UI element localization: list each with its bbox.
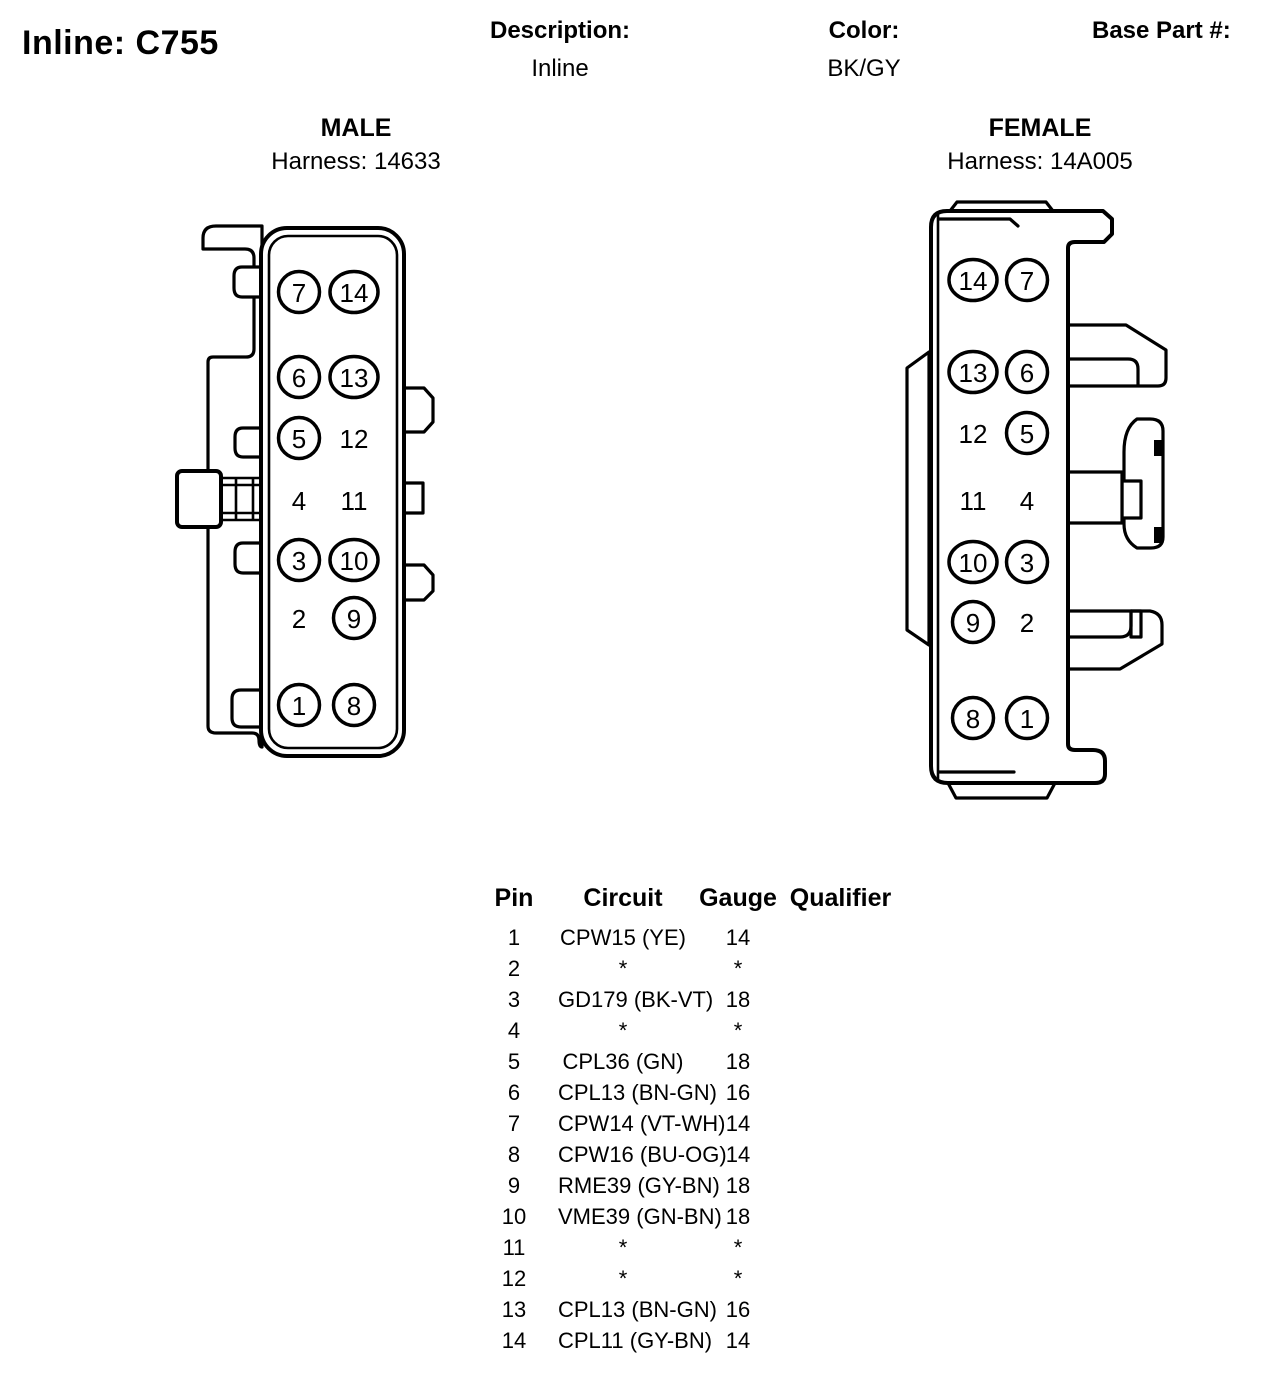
pin-cell: 5 [470, 1046, 558, 1077]
pin-cell: 14 [470, 1325, 558, 1356]
table-row: 8CPW16 (BU-OG)14 [470, 1139, 893, 1170]
pin-number: 6 [1020, 358, 1034, 388]
circuit-cell: VME39 (GN-BN) [558, 1201, 688, 1232]
pin-cell: 10 [470, 1201, 558, 1232]
pin-number: 7 [292, 278, 306, 308]
pin-number: 14 [959, 266, 988, 296]
pin-number: 8 [966, 704, 980, 734]
table-row: 6CPL13 (BN-GN)16 [470, 1077, 893, 1108]
male-flange-notch-3 [235, 543, 262, 573]
male-title: MALE [236, 114, 476, 143]
qualifier-cell [788, 1170, 893, 1201]
qualifier-cell [788, 1325, 893, 1356]
pin-number: 11 [960, 486, 987, 516]
table-row: 14CPL11 (GY-BN)14 [470, 1325, 893, 1356]
gauge-cell: 18 [688, 1170, 788, 1201]
table-row: 9RME39 (GY-BN)18 [470, 1170, 893, 1201]
pin-table-body: 1CPW15 (YE)142**3GD179 (BK-VT)184**5CPL3… [470, 922, 893, 1356]
gauge-cell: 18 [688, 1201, 788, 1232]
pin-cell: 13 [470, 1294, 558, 1325]
col-header-gauge: Gauge [688, 884, 788, 922]
color-value: BK/GY [794, 55, 934, 83]
circuit-cell: * [558, 953, 688, 984]
gauge-cell: 14 [688, 1139, 788, 1170]
qualifier-cell [788, 1139, 893, 1170]
pin-number: 13 [959, 358, 988, 388]
table-row: 12** [470, 1263, 893, 1294]
female-lock-block [1066, 472, 1122, 523]
pin-cell: 6 [470, 1077, 558, 1108]
pin-number: 4 [1020, 486, 1034, 516]
table-row: 3GD179 (BK-VT)18 [470, 984, 893, 1015]
table-row: 4** [470, 1015, 893, 1046]
male-right-tab-top [403, 388, 433, 432]
pin-number: 14 [340, 278, 369, 308]
gauge-cell: * [688, 1015, 788, 1046]
pin-number: 2 [1020, 608, 1034, 638]
gauge-cell: * [688, 1263, 788, 1294]
pin-number: 13 [340, 363, 369, 393]
circuit-cell: CPW14 (VT-WH) [558, 1108, 688, 1139]
pin-number: 9 [347, 604, 361, 634]
female-harness: Harness: 14A005 [920, 148, 1160, 176]
table-row: 10VME39 (GN-BN)18 [470, 1201, 893, 1232]
male-right-tab-bottom [403, 565, 433, 600]
qualifier-cell [788, 1232, 893, 1263]
circuit-cell: CPL13 (BN-GN) [558, 1294, 688, 1325]
pin-number: 6 [292, 363, 306, 393]
circuit-cell: CPL36 (GN) [558, 1046, 688, 1077]
female-lock-notch-top [1154, 440, 1163, 456]
female-lock-notch-bottom [1154, 527, 1163, 543]
female-title: FEMALE [920, 114, 1160, 143]
circuit-cell: GD179 (BK-VT) [558, 984, 688, 1015]
pin-number: 4 [292, 486, 306, 516]
circuit-cell: * [558, 1263, 688, 1294]
table-row: 11** [470, 1232, 893, 1263]
female-right-tab-bottom [1066, 611, 1162, 669]
circuit-cell: CPL13 (BN-GN) [558, 1077, 688, 1108]
base-part-label: Base Part #: [1092, 17, 1231, 45]
male-lock-tab [177, 471, 221, 527]
table-row: 1CPW15 (YE)14 [470, 922, 893, 953]
qualifier-cell [788, 922, 893, 953]
male-harness: Harness: 14633 [236, 148, 476, 176]
female-caption: FEMALE Harness: 14A005 [920, 114, 1160, 176]
pin-number: 9 [966, 608, 980, 638]
qualifier-cell [788, 953, 893, 984]
pin-table-header: Pin Circuit Gauge Qualifier [470, 884, 893, 922]
pin-cell: 8 [470, 1139, 558, 1170]
circuit-cell: CPW15 (YE) [558, 922, 688, 953]
female-connector-drawing: 1471361251141039281 [895, 195, 1175, 805]
gauge-cell: * [688, 953, 788, 984]
pin-cell: 3 [470, 984, 558, 1015]
circuit-cell: CPL11 (GY-BN) [558, 1325, 688, 1356]
qualifier-cell [788, 1077, 893, 1108]
pin-cell: 1 [470, 922, 558, 953]
gauge-cell: 18 [688, 984, 788, 1015]
connector-pinout-page: { "header": { "title": "Inline: C755", "… [0, 0, 1280, 1386]
female-right-tab-top [1066, 325, 1166, 386]
color-block: Color: BK/GY [794, 17, 934, 83]
qualifier-cell [788, 1263, 893, 1294]
pin-table: Pin Circuit Gauge Qualifier 1CPW15 (YE)1… [470, 884, 893, 1356]
circuit-cell: CPW16 (BU-OG) [558, 1139, 688, 1170]
pin-number: 11 [341, 486, 368, 516]
pin-number: 3 [292, 546, 306, 576]
male-flange-notch-4 [232, 690, 262, 727]
pin-cell: 11 [470, 1232, 558, 1263]
pin-number: 7 [1020, 266, 1034, 296]
description-label: Description: [450, 17, 670, 45]
description-value: Inline [450, 55, 670, 83]
pin-cell: 7 [470, 1108, 558, 1139]
pin-number: 1 [292, 691, 306, 721]
male-flange-notch-1 [234, 267, 262, 297]
female-left-strip [907, 352, 929, 645]
table-row: 2** [470, 953, 893, 984]
pin-number: 10 [340, 546, 369, 576]
circuit-cell: RME39 (GY-BN) [558, 1170, 688, 1201]
pin-number: 10 [959, 548, 988, 578]
col-header-qualifier: Qualifier [788, 884, 893, 922]
gauge-cell: 14 [688, 1108, 788, 1139]
pin-cell: 2 [470, 953, 558, 984]
pin-number: 12 [959, 419, 988, 449]
pin-number: 12 [340, 424, 369, 454]
color-label: Color: [794, 17, 934, 45]
male-flange-notch-2 [235, 428, 262, 457]
qualifier-cell [788, 984, 893, 1015]
female-bottom-key [948, 783, 1055, 798]
page-title: Inline: C755 [22, 24, 219, 63]
circuit-cell: * [558, 1015, 688, 1046]
pin-number: 1 [1020, 704, 1034, 734]
table-row: 5CPL36 (GN)18 [470, 1046, 893, 1077]
table-row: 7CPW14 (VT-WH)14 [470, 1108, 893, 1139]
qualifier-cell [788, 1294, 893, 1325]
gauge-cell: 16 [688, 1294, 788, 1325]
pin-cell: 12 [470, 1263, 558, 1294]
qualifier-cell [788, 1201, 893, 1232]
circuit-cell: * [558, 1232, 688, 1263]
qualifier-cell [788, 1046, 893, 1077]
gauge-cell: 16 [688, 1077, 788, 1108]
col-header-circuit: Circuit [558, 884, 688, 922]
male-caption: MALE Harness: 14633 [236, 114, 476, 176]
gauge-cell: 14 [688, 1325, 788, 1356]
pin-number: 5 [292, 424, 306, 454]
female-lock-inner-block [1122, 481, 1141, 518]
pin-number: 8 [347, 691, 361, 721]
pin-number: 5 [1020, 419, 1034, 449]
pin-number: 3 [1020, 548, 1034, 578]
qualifier-cell [788, 1108, 893, 1139]
pin-number: 2 [292, 604, 306, 634]
qualifier-cell [788, 1015, 893, 1046]
col-header-pin: Pin [470, 884, 558, 922]
male-connector-drawing: 7146135124113102918 [170, 195, 450, 770]
description-block: Description: Inline [450, 17, 670, 83]
male-body-outline [261, 228, 404, 756]
gauge-cell: 18 [688, 1046, 788, 1077]
table-row: 13CPL13 (BN-GN)16 [470, 1294, 893, 1325]
pin-cell: 4 [470, 1015, 558, 1046]
gauge-cell: * [688, 1232, 788, 1263]
gauge-cell: 14 [688, 922, 788, 953]
pin-cell: 9 [470, 1170, 558, 1201]
